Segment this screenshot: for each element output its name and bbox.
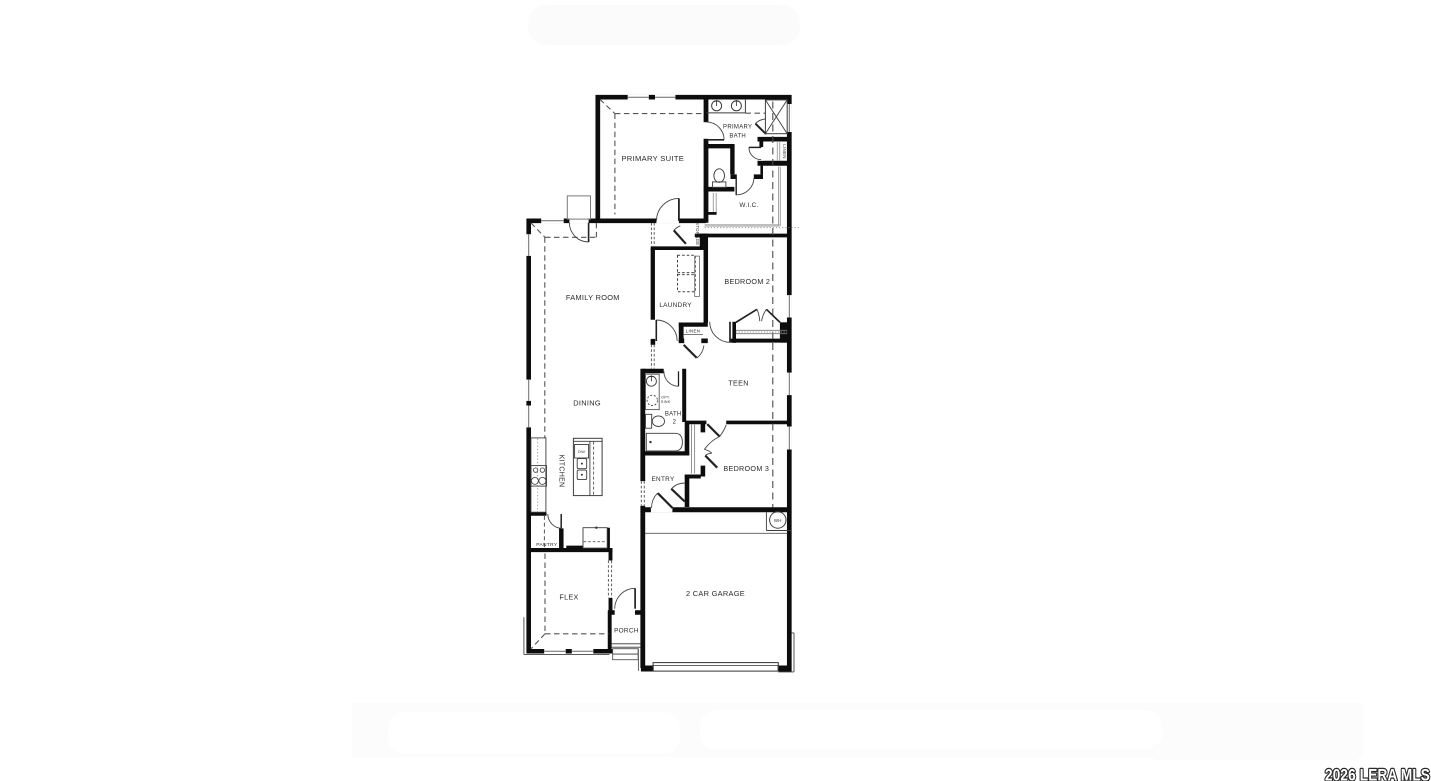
svg-text:PRIMARY: PRIMARY [723,125,752,131]
svg-text:BEDROOM 2: BEDROOM 2 [724,277,770,286]
svg-text:ENTRY: ENTRY [651,476,674,483]
svg-text:WH: WH [774,518,782,523]
svg-text:PORCH: PORCH [614,628,639,635]
svg-text:BATH: BATH [729,134,746,140]
svg-text:PRIMARY SUITE: PRIMARY SUITE [621,154,684,163]
svg-text:DW: DW [578,449,585,454]
svg-text:FAMILY ROOM: FAMILY ROOM [566,293,620,302]
svg-text:LINEN: LINEN [686,328,700,333]
svg-text:BATH: BATH [665,411,682,417]
svg-text:STORAGE: STORAGE [695,222,700,246]
svg-text:PANTRY: PANTRY [536,542,558,548]
svg-text:LINEN: LINEN [782,144,787,158]
svg-text:BEDROOM 3: BEDROOM 3 [723,464,769,473]
svg-text:2 CAR GARAGE: 2 CAR GARAGE [686,589,745,598]
svg-text:SINK: SINK [661,400,671,404]
svg-text:FLEX: FLEX [559,592,578,601]
svg-text:2026 LERA MLS: 2026 LERA MLS [1325,767,1430,781]
svg-text:LAUNDRY: LAUNDRY [659,302,692,309]
svg-text:KITCHEN: KITCHEN [558,455,565,488]
svg-text:2: 2 [673,420,677,426]
svg-text:DINING: DINING [573,398,601,407]
svg-text:TEEN: TEEN [728,379,748,388]
svg-text:W.I.C.: W.I.C. [739,202,758,209]
